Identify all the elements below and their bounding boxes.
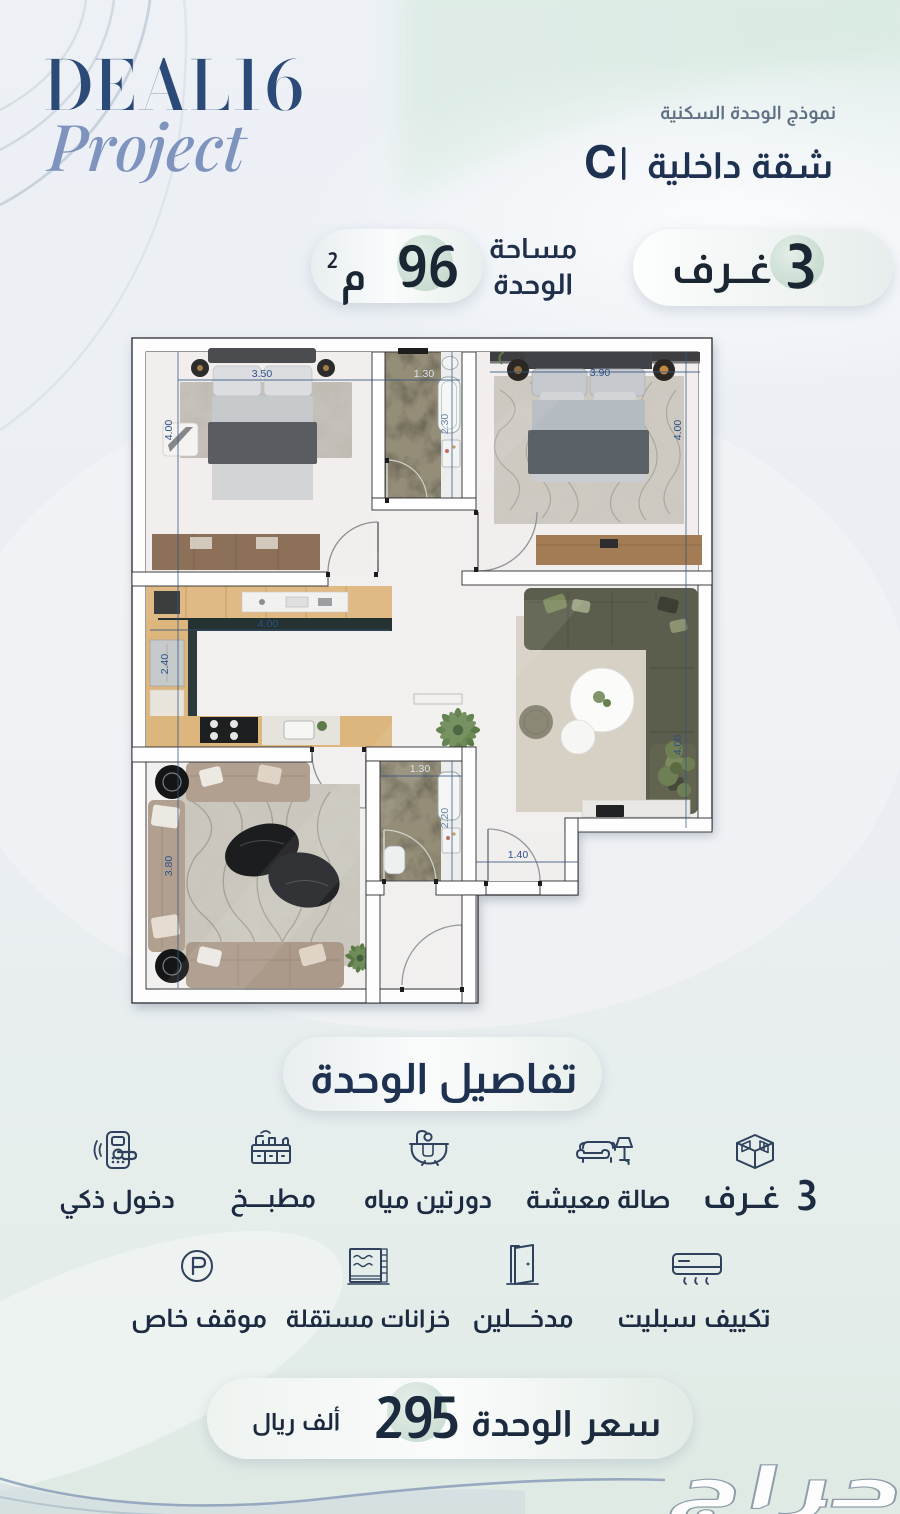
svg-text:2.40: 2.40	[159, 654, 171, 675]
svg-text:3.80: 3.80	[163, 856, 175, 877]
svg-text:2.30: 2.30	[439, 414, 451, 435]
svg-text:1.30: 1.30	[414, 368, 435, 380]
svg-text:4.00: 4.00	[672, 420, 684, 441]
svg-text:2.20: 2.20	[439, 808, 451, 829]
svg-text:1.30: 1.30	[410, 763, 431, 775]
svg-text:4.00: 4.00	[258, 618, 279, 630]
svg-text:4.00: 4.00	[163, 420, 175, 441]
svg-text:3.50: 3.50	[252, 368, 273, 380]
svg-text:3.90: 3.90	[590, 367, 611, 379]
svg-text:1.40: 1.40	[508, 849, 529, 861]
svg-text:4.00: 4.00	[672, 735, 684, 756]
